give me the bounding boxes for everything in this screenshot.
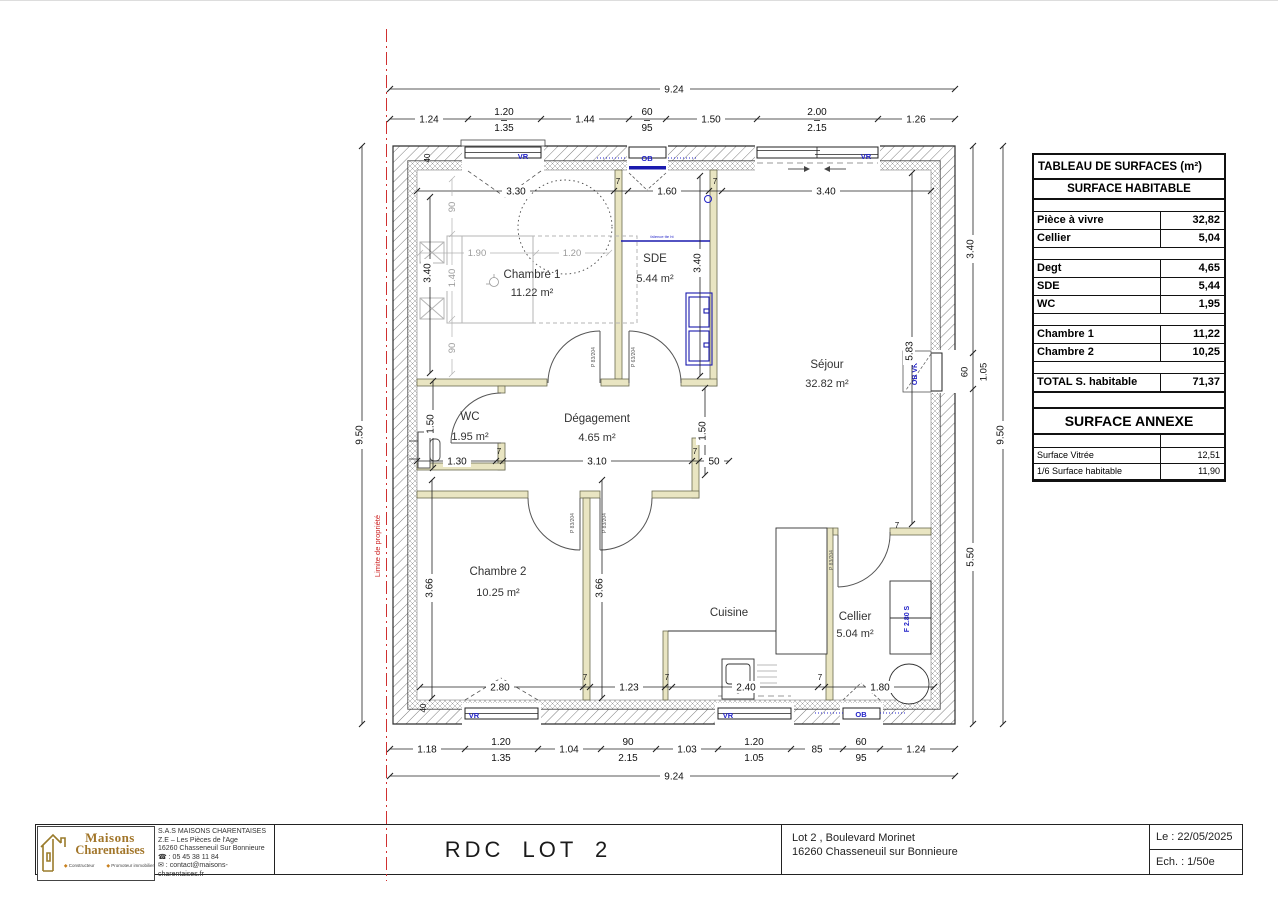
svg-text:85: 85 [811, 745, 823, 756]
svg-text:1.30: 1.30 [447, 457, 467, 468]
room-area: 5.04 m² [836, 628, 874, 640]
door-label: P 83/204 [570, 513, 576, 533]
svg-text:2.15: 2.15 [807, 123, 827, 134]
surface-table-title: TABLEAU DE SURFACES (m²) [1034, 155, 1224, 180]
cellier-fixture-label: F 2.80 S [904, 605, 911, 632]
table-gap [1034, 393, 1224, 407]
svg-text:3.10: 3.10 [587, 457, 607, 468]
scale-label: Ech. : 1/50e [1150, 850, 1242, 874]
table-row: SDE5,44 [1034, 278, 1224, 296]
svg-text:3.66: 3.66 [425, 578, 436, 598]
svg-text:1.35: 1.35 [494, 123, 514, 134]
surface-annexe-header: SURFACE ANNEXE [1034, 407, 1224, 435]
svg-text:1.20: 1.20 [494, 107, 514, 118]
svg-text:7: 7 [713, 177, 718, 186]
svg-text:1.04: 1.04 [559, 745, 579, 756]
surface-table: TABLEAU DE SURFACES (m²) SURFACE HABITAB… [1032, 153, 1226, 482]
svg-text:5.50: 5.50 [966, 547, 977, 567]
svg-text:1.05: 1.05 [744, 753, 764, 764]
svg-text:1.24: 1.24 [419, 115, 439, 126]
svg-text:1.23: 1.23 [619, 683, 639, 694]
window-label: OB [855, 710, 867, 719]
svg-text:90: 90 [622, 737, 634, 748]
room-area: 4.65 m² [578, 432, 616, 444]
window-label: OB [641, 154, 653, 163]
svg-text:1.05: 1.05 [979, 363, 990, 382]
water-heater [889, 664, 929, 704]
svg-text:3.30: 3.30 [506, 187, 526, 198]
room-name: SDE [643, 253, 667, 265]
table-total-row: TOTAL S. habitable71,37 [1034, 374, 1224, 393]
svg-text:1.50: 1.50 [701, 115, 721, 126]
svg-text:3.40: 3.40 [966, 239, 977, 259]
room-name: Chambre 2 [470, 566, 527, 578]
project-address-cell: Lot 2 , Boulevard Morinet 16260 Chassene… [781, 825, 1149, 874]
svg-text:95: 95 [641, 123, 653, 134]
svg-text:1.26: 1.26 [906, 115, 926, 126]
table-row: Cellier5,04 [1034, 230, 1224, 248]
vanity [686, 293, 712, 365]
svg-text:2.80: 2.80 [490, 683, 510, 694]
table-row: 1/6 Surface habitable11,90 [1034, 464, 1224, 480]
table-row: Surface Vitrée12,51 [1034, 448, 1224, 464]
date-scale-cell: Le : 22/05/2025 Ech. : 1/50e [1149, 825, 1242, 874]
window-label: VR [723, 711, 734, 720]
house-icon [40, 833, 66, 873]
svg-text:1.90: 1.90 [468, 248, 487, 259]
room-name: Chambre 1 [504, 269, 561, 281]
svg-text:7: 7 [616, 177, 621, 186]
table-row: Chambre 210,25 [1034, 344, 1224, 362]
table-row: Degt4,65 [1034, 260, 1224, 278]
svg-text:7: 7 [497, 447, 502, 456]
svg-text:5.83: 5.83 [905, 341, 916, 361]
svg-text:1.20: 1.20 [744, 737, 764, 748]
drawing-title-cell: RDC LOT 2 [274, 825, 781, 874]
room-name: Cellier [839, 611, 872, 623]
room-area: 32.82 m² [805, 378, 849, 390]
logo-text: Maisons Charentaises [66, 831, 154, 857]
svg-text:7: 7 [693, 447, 698, 456]
table-row: WC1,95 [1034, 296, 1224, 314]
svg-text:2.00: 2.00 [807, 107, 827, 118]
window-label: VR [861, 152, 872, 161]
svg-text:7: 7 [818, 673, 823, 682]
svg-text:3.40: 3.40 [693, 253, 704, 273]
address-line: Lot 2 , Boulevard Morinet [792, 831, 1149, 845]
svg-text:2.40: 2.40 [736, 683, 756, 694]
table-row: Pièce à vivre32,82 [1034, 212, 1224, 230]
surface-habitable-header: SURFACE HABITABLE [1034, 180, 1224, 200]
logo-taglines: ◆ Constructeur ◆ Promoteur immobilier [64, 863, 154, 869]
door-label: P 83/204 [829, 550, 835, 570]
svg-text:9.50: 9.50 [996, 425, 1007, 445]
ceiling-circle [518, 180, 612, 274]
window-label: VR [518, 152, 529, 161]
svg-text:2.15: 2.15 [618, 753, 638, 764]
table-spacer [1034, 200, 1224, 212]
wall-lamp-icon [486, 274, 499, 287]
svg-text:90: 90 [447, 343, 458, 354]
svg-text:90: 90 [447, 202, 458, 213]
room-area: 1.95 m² [451, 431, 489, 443]
door-label: P 83/204 [591, 347, 597, 367]
company-logo: Maisons Charentaises ◆ Constructeur ◆ Pr… [37, 826, 155, 881]
room-area: 5.44 m² [636, 273, 674, 285]
svg-text:1.50: 1.50 [698, 421, 709, 441]
svg-text:1.35: 1.35 [491, 753, 511, 764]
windows: VR OB VR VR VR [461, 140, 958, 729]
svg-text:60: 60 [855, 737, 867, 748]
room-name: Dégagement [564, 413, 631, 425]
window-label: OB VR [912, 363, 919, 385]
floorplan-sheet: VR OB VR VR VR [0, 0, 1278, 900]
svg-text:1.18: 1.18 [417, 745, 437, 756]
room-area: 10.25 m² [476, 587, 520, 599]
svg-text:1.20: 1.20 [563, 248, 582, 259]
svg-text:95: 95 [855, 753, 867, 764]
table-spacer [1034, 248, 1224, 260]
svg-text:7: 7 [665, 673, 670, 682]
window-label: VR [469, 711, 480, 720]
svg-text:1.60: 1.60 [657, 187, 677, 198]
company-cell: Maisons Charentaises ◆ Constructeur ◆ Pr… [36, 825, 274, 874]
room-area: 11.22 m² [511, 287, 554, 299]
svg-text:9.24: 9.24 [664, 772, 684, 783]
date-label: Le : 22/05/2025 [1150, 825, 1242, 850]
room-name: Séjour [810, 359, 843, 371]
svg-text:9.50: 9.50 [355, 425, 366, 445]
company-info: S.A.S MAISONS CHARENTAISES Z.E – Les Piè… [158, 828, 273, 880]
title-block: Maisons Charentaises ◆ Constructeur ◆ Pr… [35, 824, 1243, 875]
room-name: Cuisine [710, 607, 748, 619]
svg-text:60: 60 [641, 107, 653, 118]
svg-text:60: 60 [960, 367, 971, 378]
svg-text:40: 40 [419, 703, 428, 712]
svg-text:1.03: 1.03 [677, 745, 697, 756]
svg-text:1.40: 1.40 [447, 269, 458, 288]
table-spacer [1034, 435, 1224, 448]
table-row: Chambre 111,22 [1034, 326, 1224, 344]
svg-text:50: 50 [708, 457, 720, 468]
door-label: P 63/204 [631, 347, 637, 367]
svg-text:3.40: 3.40 [816, 187, 836, 198]
svg-text:1.80: 1.80 [870, 683, 890, 694]
drawing-title: RDC LOT 2 [445, 837, 612, 863]
svg-text:7: 7 [583, 673, 588, 682]
svg-text:3.66: 3.66 [595, 578, 606, 598]
room-name: WC [460, 411, 479, 423]
svg-text:1.50: 1.50 [426, 414, 437, 434]
address-line: 16260 Chasseneuil sur Bonnieure [792, 845, 1149, 859]
table-spacer [1034, 314, 1224, 326]
property-limit-line [386, 29, 387, 881]
property-line-label: Limite de propriété [373, 515, 382, 577]
svg-text:3.40: 3.40 [423, 263, 434, 283]
svg-text:Limite de propriété: Limite de propriété [373, 515, 382, 577]
svg-text:9.24: 9.24 [664, 85, 684, 96]
faience-note: faïence tte ht [650, 234, 674, 239]
svg-text:1.20: 1.20 [491, 737, 511, 748]
svg-text:1.44: 1.44 [575, 115, 595, 126]
svg-text:7: 7 [895, 521, 900, 530]
door-label: P 83/204 [602, 513, 608, 533]
table-spacer [1034, 362, 1224, 374]
cellier-units [889, 581, 931, 704]
svg-text:40: 40 [423, 153, 432, 162]
svg-text:1.24: 1.24 [906, 745, 926, 756]
